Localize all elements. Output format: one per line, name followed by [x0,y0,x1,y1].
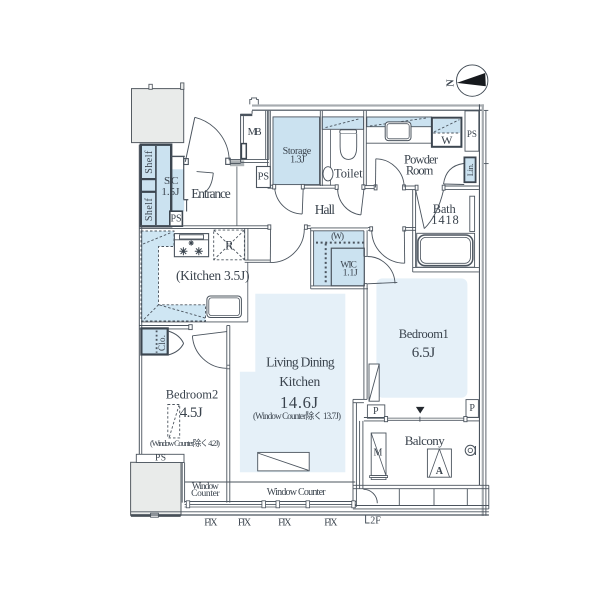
svg-text:MB: MB [248,127,262,138]
svg-text:Room: Room [406,163,434,177]
svg-text:1418: 1418 [431,213,459,227]
svg-text:N: N [445,79,456,87]
svg-text:R: R [225,238,234,252]
svg-text:FIX: FIX [278,518,292,529]
svg-text:PS: PS [155,454,166,464]
svg-text:(Window Counter除く 13.7J): (Window Counter除く 13.7J) [253,410,341,421]
svg-text:(W): (W) [331,231,344,242]
svg-text:4.5J: 4.5J [180,405,203,421]
svg-text:Living Dining: Living Dining [266,355,335,370]
svg-text:A: A [436,466,444,477]
svg-text:Hall: Hall [315,202,335,217]
svg-text:Toilet: Toilet [334,167,363,181]
svg-text:P: P [373,406,379,417]
svg-text:6.5J: 6.5J [412,345,436,361]
svg-text:PS: PS [171,214,182,225]
svg-text:14.6J: 14.6J [280,393,319,412]
svg-text:Entrance: Entrance [191,186,231,201]
svg-text:Balcony: Balcony [405,433,446,448]
svg-text:Shelf: Shelf [144,197,155,221]
svg-text:1.3J: 1.3J [290,155,305,166]
svg-text:(Kitchen 3.5J): (Kitchen 3.5J) [176,268,250,283]
svg-text:W: W [441,133,453,147]
svg-text:1.5J: 1.5J [161,186,180,198]
svg-text:(Window Counter除く 4.2J): (Window Counter除く 4.2J) [150,438,220,448]
svg-text:FIX: FIX [204,518,218,529]
svg-text:FIX: FIX [238,518,252,529]
svg-text:Lin.: Lin. [465,163,475,176]
svg-text:Window Counter: Window Counter [267,487,326,498]
svg-text:2F: 2F [370,516,381,527]
svg-text:Kitchen: Kitchen [279,374,320,389]
svg-text:FIX: FIX [324,518,338,529]
svg-text:Counter: Counter [191,489,220,499]
svg-text:PS: PS [467,129,477,139]
svg-text:Bedroom2: Bedroom2 [166,388,219,402]
svg-text:P: P [469,403,475,414]
svg-text:PS: PS [258,172,270,183]
svg-text:Clo.: Clo. [157,335,167,351]
svg-text:Shelf: Shelf [144,150,155,174]
svg-text:1.1J: 1.1J [343,269,358,279]
svg-text:Bedroom1: Bedroom1 [399,327,449,341]
svg-text:M: M [374,448,383,459]
